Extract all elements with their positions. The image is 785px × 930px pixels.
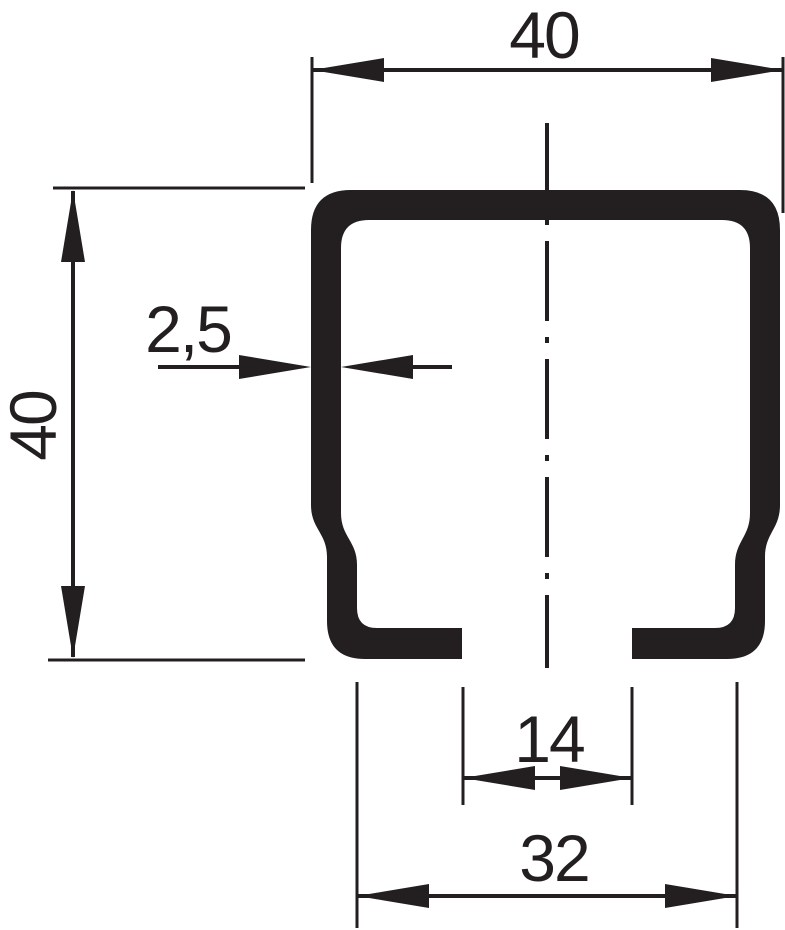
dimension-left-height: 40 bbox=[0, 188, 305, 660]
dimension-label-bottom-width: 32 bbox=[519, 821, 588, 895]
dimension-label-left-height: 40 bbox=[0, 391, 70, 461]
arrowhead-right-icon bbox=[665, 884, 737, 908]
dimension-wall-thickness: 2,5 bbox=[145, 292, 452, 379]
arrowhead-down-icon bbox=[61, 586, 85, 658]
dimension-label-top-width: 40 bbox=[509, 0, 579, 72]
arrowhead-left-icon bbox=[357, 884, 429, 908]
technical-drawing-page: 40 40 2,5 14 bbox=[0, 0, 785, 930]
c-channel-profile-drawing: 40 40 2,5 14 bbox=[0, 0, 785, 930]
profile bbox=[311, 123, 780, 668]
arrowhead-right-icon bbox=[711, 58, 783, 82]
arrowhead-right-icon bbox=[239, 355, 311, 379]
dimension-slot-opening: 14 bbox=[463, 687, 632, 805]
arrowhead-up-icon bbox=[61, 190, 85, 262]
arrowhead-left-icon bbox=[341, 355, 413, 379]
dimension-label-slot-opening: 14 bbox=[514, 702, 584, 776]
arrowhead-left-icon bbox=[312, 58, 384, 82]
dimension-label-wall-thickness: 2,5 bbox=[145, 292, 231, 366]
